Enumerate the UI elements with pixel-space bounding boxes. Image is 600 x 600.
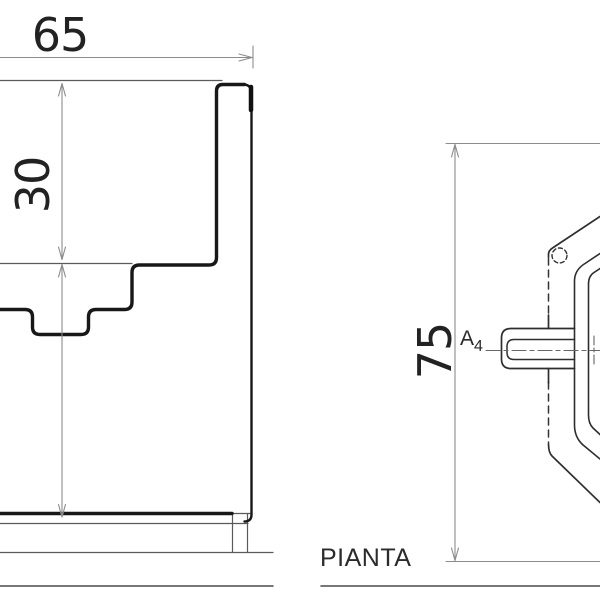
plan-rim-outer-line <box>575 254 600 460</box>
technical-drawing: 65 30 75 A4 PIANTA <box>0 0 600 600</box>
spout-outer-outline <box>502 329 575 369</box>
axis-marker-letter: A <box>460 327 474 350</box>
plan-view-title: PIANTA <box>320 546 411 571</box>
tub-outer-wall-profile <box>245 85 252 522</box>
width-dimension-value: 65 <box>32 12 89 58</box>
spout-inner-outline <box>507 340 575 360</box>
plan-outer-top-diagonal <box>549 217 600 258</box>
hidden-hole-circle <box>552 248 567 263</box>
rim-depth-dimension-value: 30 <box>10 157 56 214</box>
drawing-linework <box>0 0 600 600</box>
plan-view-linework <box>486 217 600 503</box>
axis-marker-subscript: 4 <box>474 338 483 355</box>
section-axis-marker: A4 <box>460 328 483 349</box>
plan-depth-dimension-value: 75 <box>412 323 458 380</box>
